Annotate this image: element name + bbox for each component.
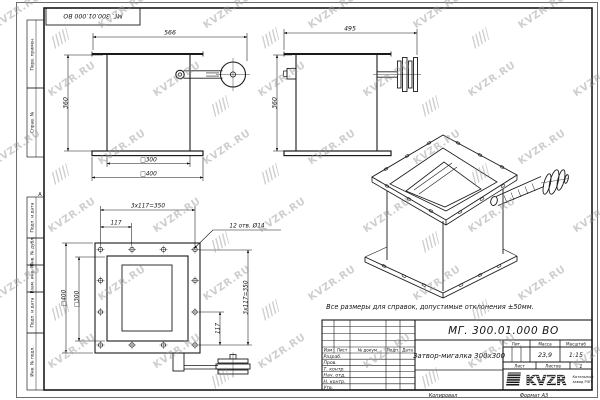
format-label: Формат А3: [520, 393, 548, 399]
side-view-dimensions: [273, 29, 417, 151]
company-name-1: Котельный: [573, 375, 595, 379]
holes-callout: 12 отв. Ø14: [229, 223, 264, 230]
row-nachotd: Нач. отд.: [324, 373, 346, 379]
col-podp: Подп.: [387, 348, 400, 353]
sheets-label: Листов: [545, 363, 561, 368]
col-dokum: № докум.: [358, 348, 379, 353]
margin-label: Подп. и дата: [30, 202, 36, 232]
company-name-2: завод РЭП: [573, 380, 593, 384]
iso-view: [365, 135, 569, 298]
col-list: Лист: [337, 348, 348, 353]
mass-value: 23,9: [538, 352, 552, 359]
scale-value: 1:15: [569, 352, 583, 359]
top-stamp-text: МГ. 300.01.000 ВО: [63, 12, 122, 19]
dim-inner-sq: □300: [75, 290, 81, 307]
scale-label: Масштаб: [566, 342, 586, 347]
col-izm: Изм: [324, 348, 333, 353]
dim-300: □300: [140, 158, 157, 164]
row-nkontr: Н. контр.: [324, 379, 346, 385]
frame-left-labels: Перв. примен. Справ. № Подп. и дата Инв.…: [29, 38, 43, 377]
dim-566: 566: [164, 30, 176, 37]
designation: МГ. 300.01.000 ВО: [448, 325, 559, 337]
footer: Копировал Формат А3: [429, 393, 549, 399]
zone-label: А: [38, 192, 42, 198]
drawing-sheet: Перв. примен. Справ. № Подп. и дата Инв.…: [0, 0, 600, 400]
reference-note: Все размеры для справок, допустимые откл…: [326, 303, 534, 311]
title-block-text: МГ. 300.01.000 ВО Затвор-мигалка 300х300…: [324, 325, 595, 391]
mass-label: Масса: [538, 342, 552, 347]
dim-495: 495: [344, 26, 356, 33]
margin-label: Инв. № подл.: [30, 346, 36, 376]
copied-label: Копировал: [429, 393, 458, 399]
front-view: [92, 52, 250, 156]
dim-360: 360: [63, 97, 70, 109]
plan-view-dim-text: 3x117=350 117 12 отв. Ø14 □400 □300 3x11…: [62, 204, 265, 335]
row-utv: Утв.: [324, 385, 334, 391]
row-tkontr: Т. контр.: [324, 366, 345, 372]
drawing-canvas: Перв. примен. Справ. № Подп. и дата Инв.…: [0, 0, 600, 400]
col-data: Дата: [402, 348, 413, 353]
plan-view: [95, 243, 250, 378]
top-stamp: МГ. 300.01.000 ВО: [46, 8, 140, 25]
dim-pitch-h: 3x117=350: [131, 204, 165, 210]
dim-step-h: 117: [110, 221, 121, 227]
margin-label: Справ. №: [30, 111, 36, 133]
sheets-value: 1: [579, 364, 582, 370]
side-view: [284, 52, 422, 156]
part-name: Затвор-мигалка 300х300: [413, 352, 506, 360]
dim-outer-sq: □400: [62, 289, 68, 306]
margin-label: Инв. № дубл.: [29, 236, 36, 266]
sheet-label: Лист: [514, 363, 525, 368]
dim-400: □400: [140, 172, 157, 178]
margin-label: Подп. и дата: [30, 297, 36, 327]
margin-label: Перв. примен.: [30, 38, 36, 71]
margin-label: Взам. инв. №: [30, 263, 36, 293]
dim-step-v: 117: [216, 323, 222, 334]
lit-label: Лит.: [512, 342, 522, 347]
row-razrab: Разраб.: [324, 354, 342, 360]
row-prov: Пров.: [324, 360, 337, 366]
dim-pitch-v: 3x117=350: [244, 280, 250, 314]
company-logo-icon: [506, 373, 521, 387]
dim-360-side: 360: [272, 97, 279, 109]
company-logo-text: KVZR: [525, 373, 567, 389]
